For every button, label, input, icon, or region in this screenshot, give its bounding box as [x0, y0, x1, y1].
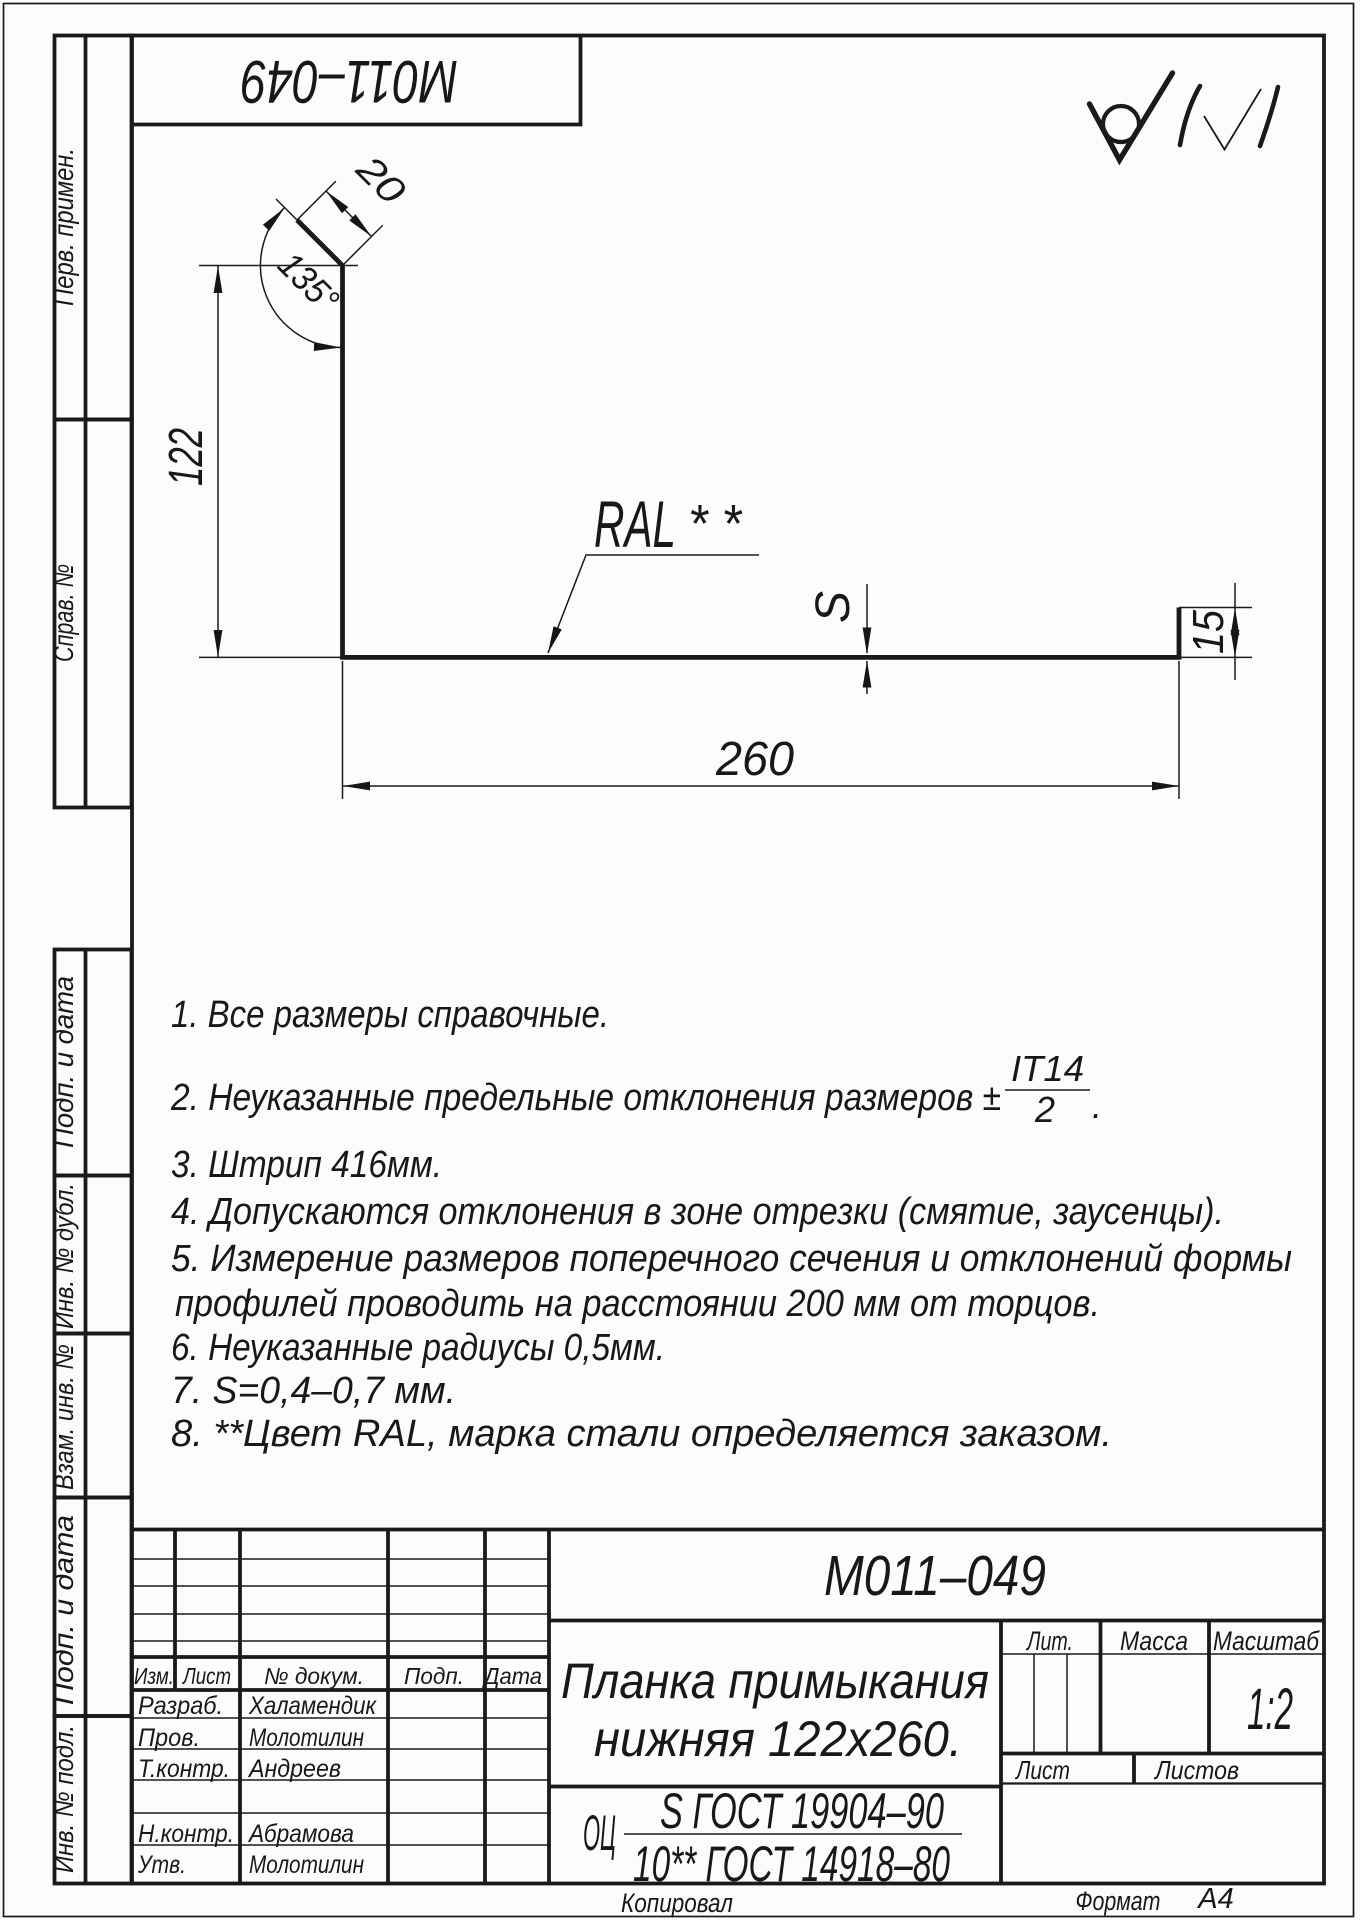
- svg-text:2: 2: [1034, 1089, 1055, 1130]
- svg-text:10** ГОСТ 14918–80: 10** ГОСТ 14918–80: [633, 1836, 950, 1892]
- svg-text:260: 260: [715, 733, 794, 786]
- svg-text:Подп. и дата: Подп. и дата: [48, 976, 79, 1148]
- svg-text:Справ. №: Справ. №: [48, 564, 79, 662]
- svg-text:Лист: Лист: [181, 1663, 231, 1689]
- svg-text:Дата: Дата: [481, 1663, 542, 1689]
- svg-text:122: 122: [160, 428, 213, 486]
- svg-text:Молотилин: Молотилин: [249, 1851, 364, 1879]
- svg-text:Масштаб: Масштаб: [1213, 1626, 1320, 1656]
- svg-text:ОЦ: ОЦ: [583, 1805, 616, 1861]
- svg-text:7. S=0,4–0,7 мм.: 7. S=0,4–0,7 мм.: [171, 1370, 456, 1412]
- svg-text:Инв. № подл.: Инв. № подл.: [49, 1725, 79, 1873]
- svg-text:1. Все размеры справочные.: 1. Все размеры справочные.: [171, 994, 609, 1036]
- svg-text:2. Неуказанные предельные отк: 2. Неуказанные предельные отклонения раз…: [170, 1077, 1001, 1119]
- svg-text:Инв. № дубл.: Инв. № дубл.: [49, 1183, 79, 1329]
- svg-text:20: 20: [347, 147, 413, 213]
- svg-text:1:2: 1:2: [1247, 1677, 1293, 1742]
- svg-text:Н.контр.: Н.контр.: [138, 1820, 234, 1848]
- svg-text:135°: 135°: [270, 244, 347, 321]
- svg-text:5. Измерение размеров попер: 5. Измерение размеров поперечного сечени…: [171, 1238, 1292, 1280]
- svg-text:6. Неуказанные радиусы 0,5мм.: 6. Неуказанные радиусы 0,5мм.: [171, 1327, 665, 1369]
- svg-text:Молотилин: Молотилин: [249, 1724, 364, 1752]
- svg-text:Взам. инв. №: Взам. инв. №: [49, 1344, 79, 1490]
- svg-text:Копировал: Копировал: [621, 1888, 733, 1918]
- svg-text:профилей проводить на расстоян: профилей проводить на расстоянии 200 мм …: [175, 1283, 1100, 1325]
- svg-text:Перв. примен.: Перв. примен.: [48, 148, 79, 306]
- svg-text:Листов: Листов: [1153, 1755, 1239, 1785]
- svg-text:4. Допускаются отклонения в з: 4. Допускаются отклонения в зоне отрезки…: [171, 1191, 1224, 1233]
- svg-text:M011–049: M011–049: [241, 48, 458, 115]
- svg-text:Разраб.: Разраб.: [138, 1692, 223, 1720]
- svg-text:Пров.: Пров.: [138, 1724, 200, 1752]
- svg-text:Формат: Формат: [1076, 1886, 1161, 1916]
- svg-text:Абрамова: Абрамова: [247, 1820, 354, 1848]
- svg-text:Т.контр.: Т.контр.: [138, 1755, 230, 1783]
- svg-text:S ГОСТ 19904–90: S ГОСТ 19904–90: [660, 1783, 944, 1839]
- svg-text:№ докум.: № докум.: [264, 1663, 364, 1689]
- svg-text:Подп. и дата: Подп. и дата: [48, 1515, 79, 1705]
- svg-text:Халамендик: Халамендик: [248, 1692, 377, 1720]
- svg-text:.: .: [1092, 1085, 1102, 1126]
- svg-text:Масса: Масса: [1120, 1626, 1188, 1656]
- svg-text:S: S: [807, 591, 860, 623]
- svg-text:А4: А4: [1196, 1883, 1233, 1915]
- svg-text:3. Штрип 416мм.: 3. Штрип 416мм.: [171, 1144, 442, 1186]
- svg-text:IT14: IT14: [1011, 1048, 1084, 1089]
- svg-text:15: 15: [1184, 610, 1233, 654]
- svg-text:M011–049: M011–049: [824, 1544, 1046, 1608]
- svg-text:Лист: Лист: [1014, 1755, 1070, 1785]
- svg-text:Изм.: Изм.: [134, 1663, 174, 1689]
- svg-text:Планка примыкания: Планка примыкания: [561, 1653, 989, 1709]
- svg-text:Утв.: Утв.: [137, 1851, 186, 1879]
- svg-text:RAL: RAL: [594, 487, 676, 561]
- svg-text:* *: * *: [688, 494, 743, 554]
- svg-text:Подп.: Подп.: [404, 1663, 464, 1689]
- svg-text:Андреев: Андреев: [247, 1755, 341, 1783]
- svg-text:нижняя 122х260.: нижняя 122х260.: [594, 1711, 962, 1767]
- svg-text:8. **Цвет RAL, марка стали оп: 8. **Цвет RAL, марка стали определяется …: [171, 1413, 1112, 1455]
- svg-text:Лит.: Лит.: [1026, 1626, 1073, 1656]
